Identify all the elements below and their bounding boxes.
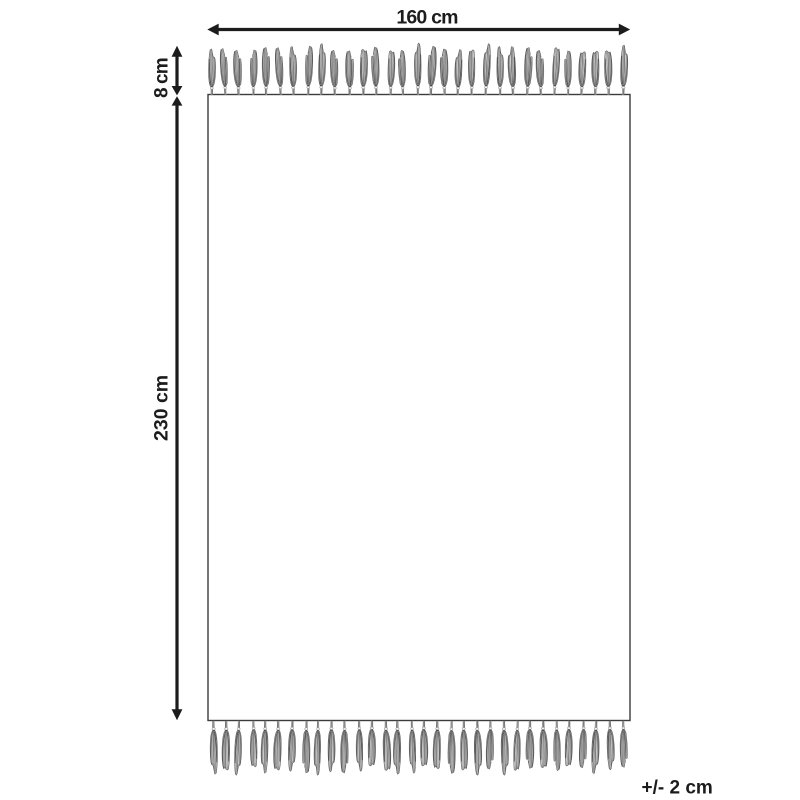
svg-text:+/- 2 cm: +/- 2 cm [642, 778, 713, 799]
svg-text:160 cm: 160 cm [396, 7, 458, 29]
svg-text:8 cm: 8 cm [152, 58, 173, 98]
svg-text:230 cm: 230 cm [151, 375, 173, 441]
